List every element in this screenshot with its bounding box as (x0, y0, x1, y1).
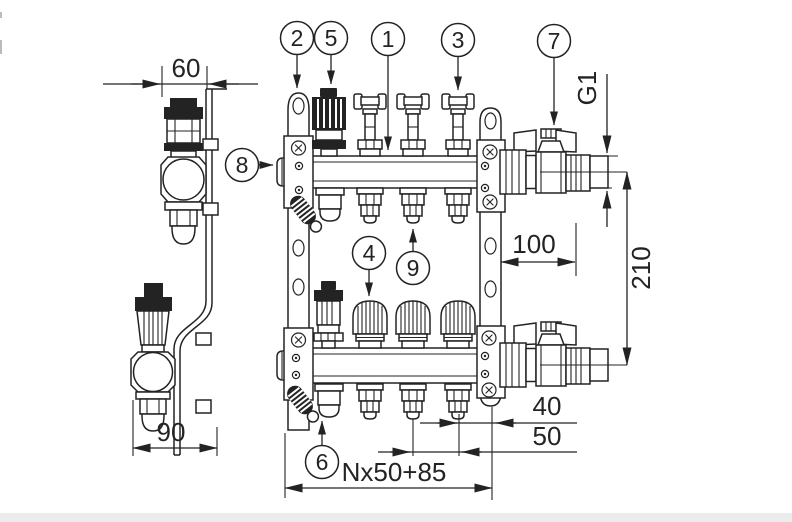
side-upper-valve (161, 98, 218, 244)
front-view (277, 88, 608, 430)
dim-thread-g1: G1 (572, 71, 618, 227)
upper-air-vent (312, 88, 346, 156)
callout-number: 5 (325, 25, 338, 51)
rivet (481, 352, 488, 359)
dim-label-210: 210 (626, 246, 656, 289)
scan-artifact-mark (0, 40, 2, 54)
bracket-clip (203, 203, 218, 215)
rivet (292, 354, 299, 361)
side-lower-valve (131, 283, 175, 431)
compression-fitting (357, 188, 383, 223)
scan-artifact-mark (0, 12, 2, 18)
rivet (292, 371, 299, 378)
lower-ball-valve (500, 322, 608, 387)
compression-fitting (445, 188, 471, 223)
callout-number: 3 (452, 27, 465, 53)
rivet (481, 162, 488, 169)
drawing-canvas: 60 (0, 0, 792, 522)
compression-fitting (400, 384, 426, 419)
callout-number: 6 (316, 449, 329, 475)
callout-number: 8 (236, 152, 249, 178)
callout-6: 6 (306, 421, 339, 479)
manifold-technical-drawing: 60 (0, 0, 792, 522)
compression-fitting (357, 384, 383, 419)
upper-ball-valve (500, 129, 608, 194)
bracket-slot (485, 113, 496, 129)
callout-8: 8 (226, 149, 274, 182)
bracket-screw (292, 333, 306, 347)
rivet (481, 184, 488, 191)
dim-label-100: 100 (512, 229, 555, 259)
lower-manifold-bar (309, 348, 480, 383)
callout-number: 4 (363, 240, 376, 266)
dim-valve-length-100: 100 (501, 223, 576, 276)
callout-3: 3 (442, 24, 475, 91)
bracket-screw (292, 141, 306, 155)
shutoff-valve-handle (442, 94, 474, 156)
thermostatic-head (441, 301, 475, 348)
bracket-clip (196, 400, 211, 413)
callout-number: 1 (382, 26, 395, 52)
callout-number: 2 (291, 25, 304, 51)
bracket-slot (485, 281, 496, 297)
bracket-clip (196, 333, 211, 345)
callout-7: 7 (538, 25, 571, 126)
callout-2: 2 (281, 22, 314, 89)
rivet (481, 370, 488, 377)
rivet (295, 162, 302, 169)
bracket-slot (293, 98, 304, 114)
bracket-screw (483, 195, 497, 209)
dim-side-width: 60 (103, 53, 258, 97)
shutoff-valve-handle (397, 94, 429, 156)
dim-label-60: 60 (172, 53, 201, 83)
callout-9: 9 (397, 229, 430, 285)
lower-air-vent (314, 281, 343, 348)
side-view: 60 (103, 53, 258, 456)
compression-fitting (400, 188, 426, 223)
callout-number: 9 (407, 255, 420, 281)
dim-label-g1: G1 (572, 71, 602, 106)
dim-label-90: 90 (157, 417, 186, 447)
bracket-clip (203, 139, 218, 150)
bracket-screw (482, 331, 496, 345)
thermostatic-head (353, 301, 387, 348)
callout-4: 4 (353, 237, 386, 297)
rivet (295, 186, 302, 193)
upper-manifold-bar (309, 156, 480, 188)
callout-5: 5 (315, 22, 348, 85)
dim-label-50: 50 (533, 421, 562, 451)
bracket-screw (482, 383, 496, 397)
shutoff-valve-handle (354, 94, 386, 156)
bracket-slot (485, 238, 496, 254)
left-mounting-bracket (284, 93, 313, 430)
callout-1: 1 (372, 23, 405, 151)
compression-fitting (445, 384, 471, 419)
scan-artifact-band (0, 513, 792, 522)
dim-label-40: 40 (533, 391, 562, 421)
upper-hose-outlet (316, 188, 344, 221)
bracket-slot (293, 240, 304, 256)
bracket-screw (483, 145, 497, 159)
lower-hose-outlet (315, 384, 343, 417)
thermostatic-head (396, 301, 430, 348)
callout-number: 7 (548, 28, 561, 54)
dim-label-total: Nx50+85 (342, 457, 447, 487)
dim-outlet-pitch-50: 50 (378, 419, 577, 456)
bracket-slot (293, 279, 304, 295)
